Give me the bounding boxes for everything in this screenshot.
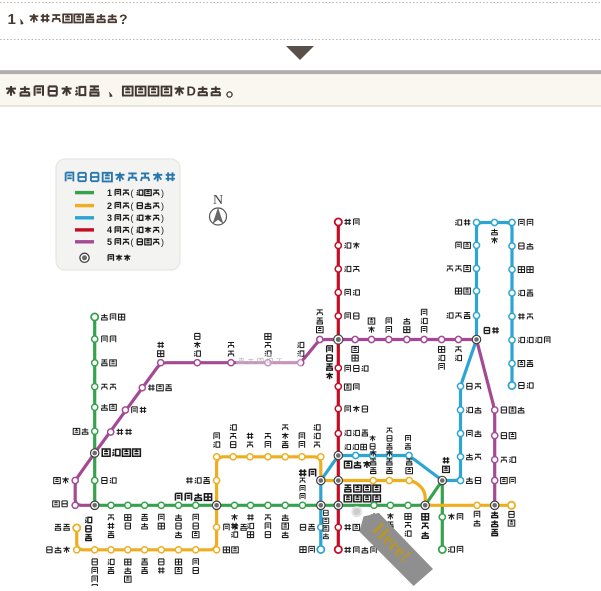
svg-text:): )	[161, 188, 164, 198]
svg-text:1: 1	[107, 188, 112, 198]
svg-text:): )	[161, 201, 164, 211]
svg-text:(: (	[131, 213, 134, 223]
svg-text:5: 5	[107, 237, 112, 247]
svg-text:N: N	[213, 193, 223, 208]
svg-text:): )	[161, 225, 164, 235]
svg-text:(: (	[131, 201, 134, 211]
svg-text:): )	[161, 213, 164, 223]
svg-text:(: (	[131, 225, 134, 235]
svg-text:3: 3	[107, 213, 112, 223]
svg-text:): )	[161, 237, 164, 247]
svg-text:2: 2	[107, 201, 112, 211]
svg-text:(: (	[131, 188, 134, 198]
svg-text:(: (	[131, 237, 134, 247]
svg-text:D: D	[187, 84, 196, 99]
svg-text:1: 1	[8, 11, 16, 28]
svg-text:4: 4	[107, 225, 112, 235]
svg-text:?: ?	[119, 11, 128, 27]
